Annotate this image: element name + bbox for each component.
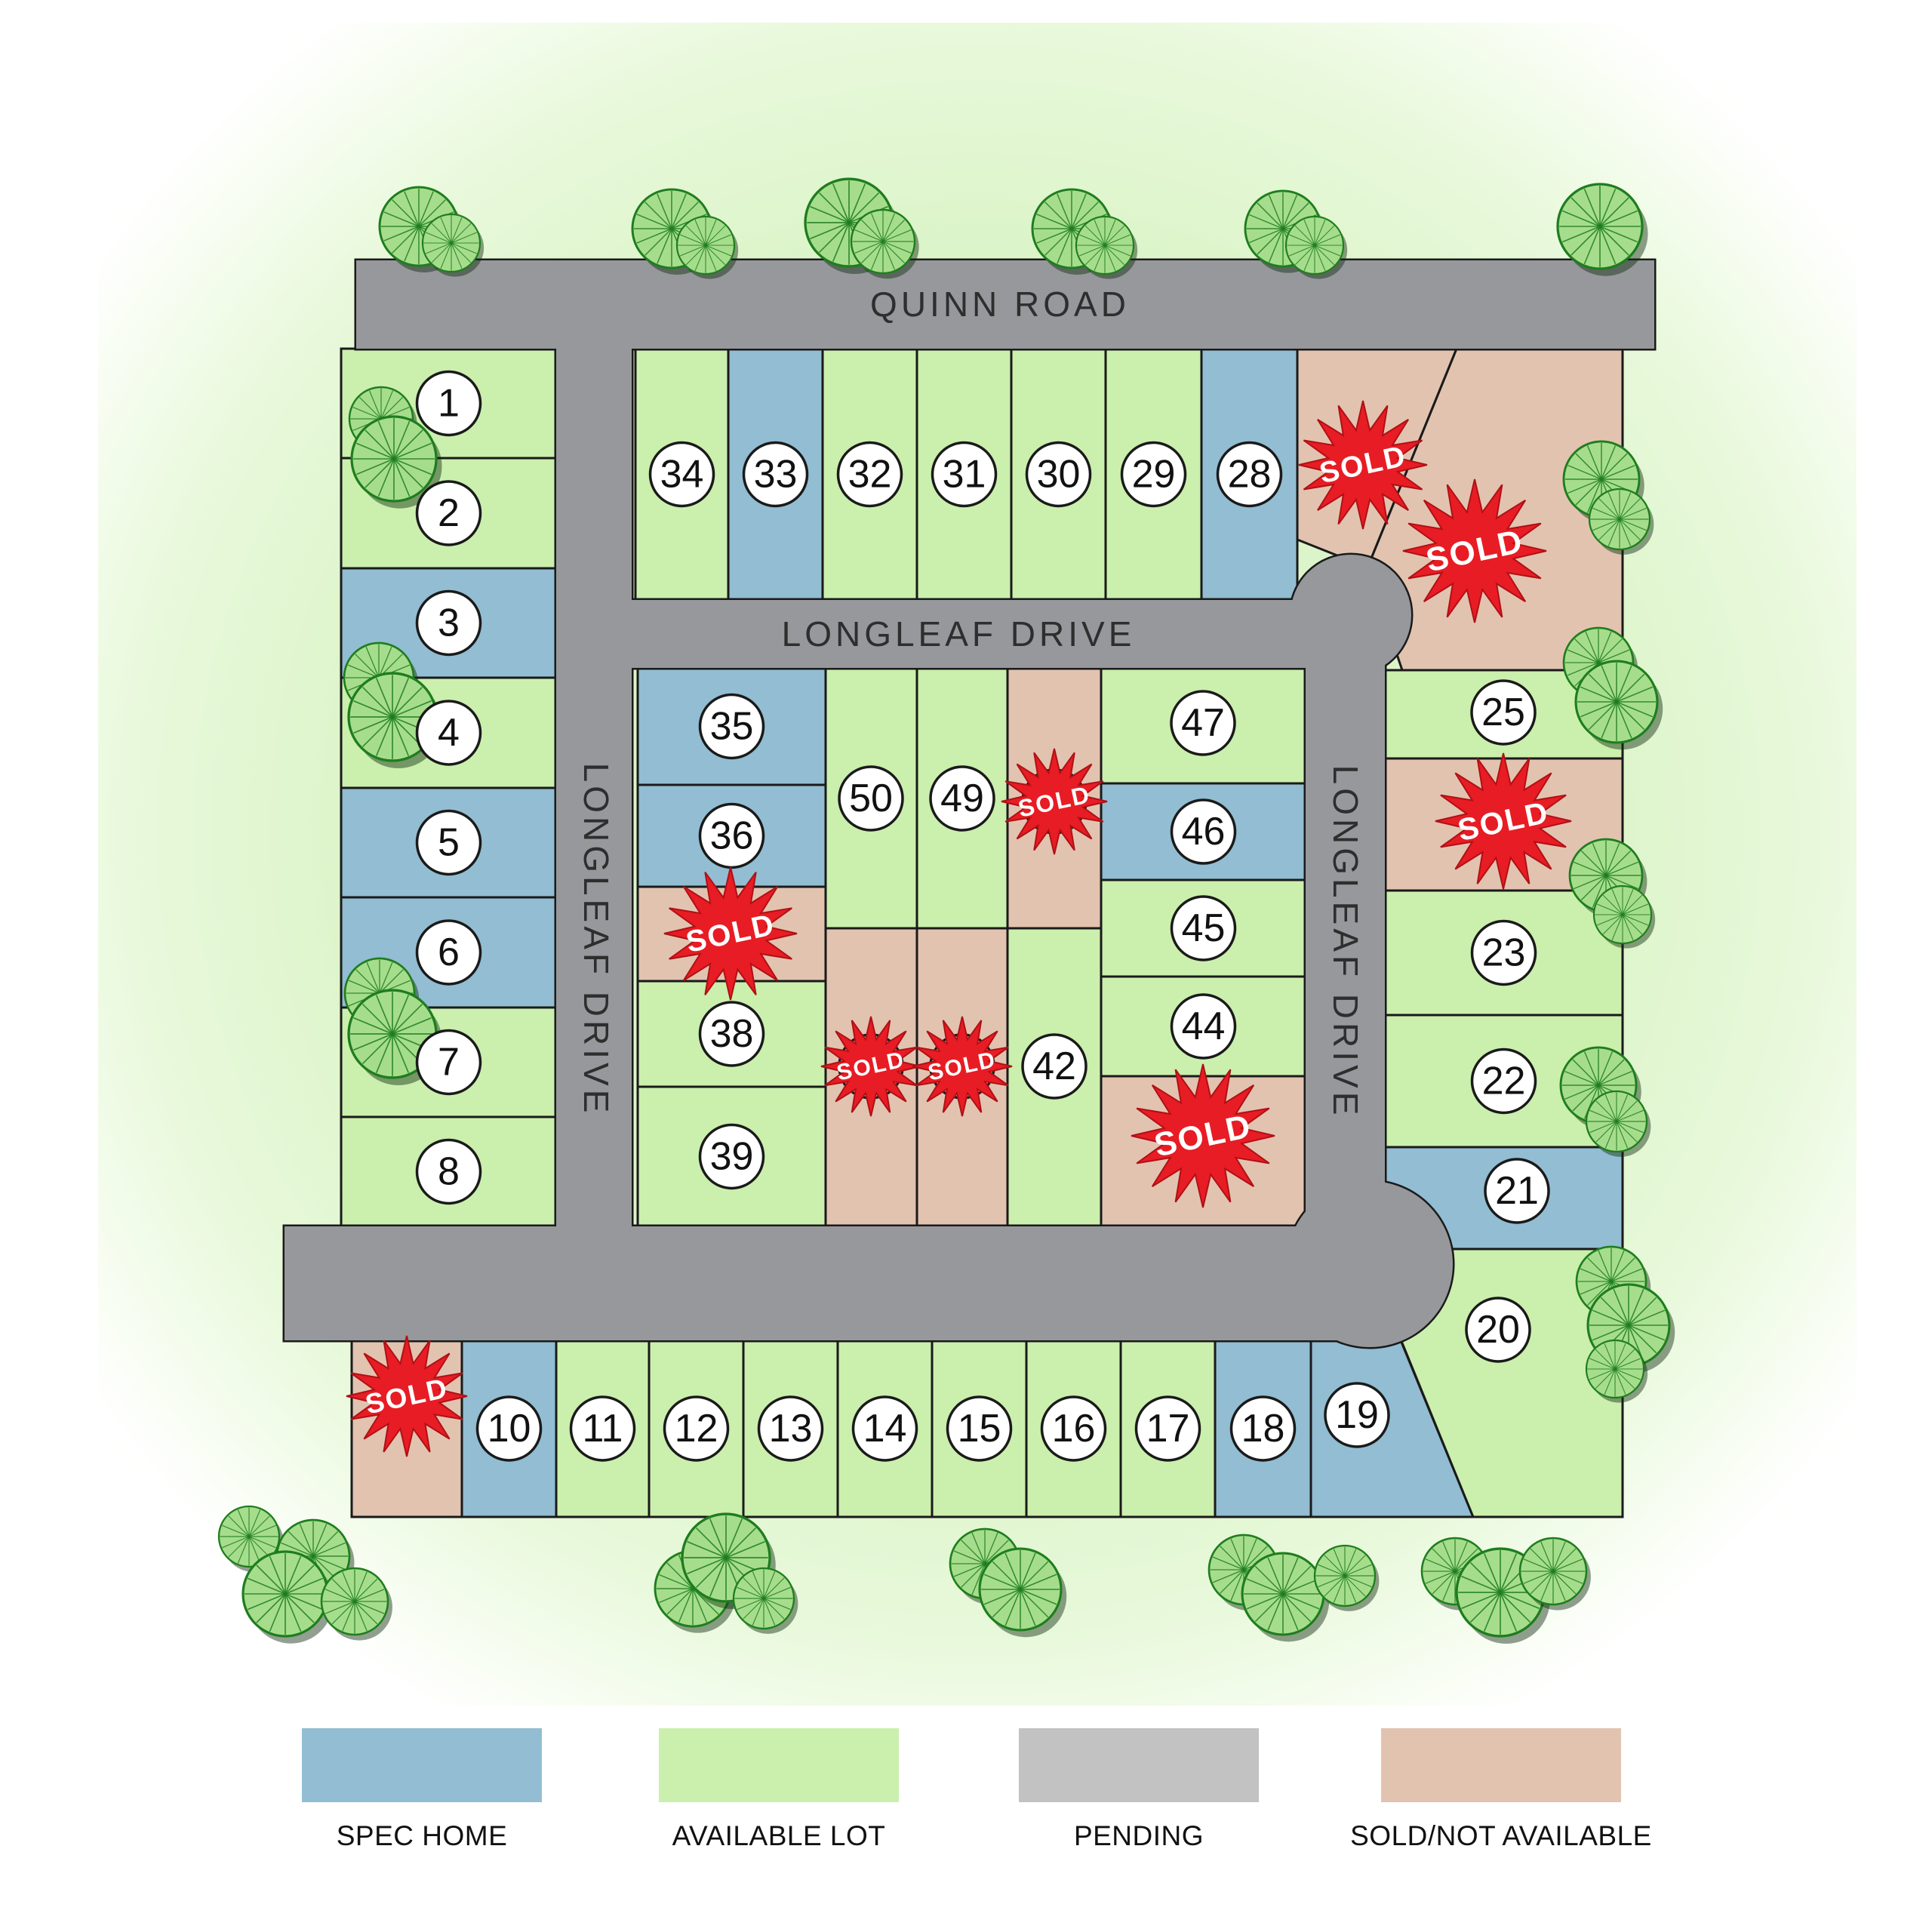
legend: SPEC HOME AVAILABLE LOT PENDING SOLD/NOT… bbox=[302, 1728, 1652, 1851]
lot-28-number: 28 bbox=[1218, 443, 1281, 506]
svg-text:45: 45 bbox=[1182, 906, 1226, 950]
svg-text:4: 4 bbox=[438, 711, 460, 755]
svg-text:25: 25 bbox=[1481, 691, 1525, 734]
lot-7-number: 7 bbox=[417, 1031, 481, 1094]
svg-text:2: 2 bbox=[438, 491, 460, 535]
lot-5-number: 5 bbox=[417, 811, 481, 875]
svg-text:42: 42 bbox=[1032, 1044, 1076, 1088]
lot-13-number: 13 bbox=[759, 1397, 823, 1460]
road-label-longleaf-drive-upper: LONGLEAF DRIVE bbox=[782, 614, 1136, 654]
road-label-longleaf-drive-right: LONGLEAF DRIVE bbox=[1326, 765, 1365, 1119]
legend-item-pending: PENDING bbox=[1019, 1728, 1259, 1851]
lot-30-number: 30 bbox=[1027, 443, 1091, 506]
lot-14-number: 14 bbox=[854, 1397, 917, 1460]
svg-text:17: 17 bbox=[1146, 1407, 1190, 1451]
sold-badge-lot-48: SOLD bbox=[1001, 749, 1107, 854]
lot-32-number: 32 bbox=[838, 443, 902, 506]
legend-swatch-pending bbox=[1019, 1728, 1259, 1802]
svg-text:29: 29 bbox=[1132, 453, 1176, 497]
svg-text:32: 32 bbox=[848, 453, 892, 497]
sold-badge-lot-9: SOLD bbox=[346, 1336, 467, 1457]
legend-label-spec-home: SPEC HOME bbox=[337, 1820, 508, 1851]
road-label-longleaf-drive-left: LONGLEAF DRIVE bbox=[577, 763, 616, 1117]
road-lower-culdesac bbox=[1287, 1181, 1453, 1347]
lot-42-number: 42 bbox=[1023, 1035, 1086, 1098]
svg-text:39: 39 bbox=[710, 1135, 754, 1179]
lot-2-number: 2 bbox=[417, 481, 481, 545]
sold-badge-lot-41: SOLD bbox=[912, 1017, 1012, 1116]
lot-22-number: 22 bbox=[1472, 1050, 1536, 1113]
svg-text:6: 6 bbox=[438, 931, 460, 974]
svg-text:47: 47 bbox=[1181, 701, 1225, 745]
lot-25-number: 25 bbox=[1472, 681, 1535, 744]
svg-text:46: 46 bbox=[1182, 810, 1226, 854]
svg-text:33: 33 bbox=[754, 453, 798, 497]
svg-text:15: 15 bbox=[958, 1407, 1001, 1451]
svg-text:34: 34 bbox=[660, 453, 704, 497]
svg-text:23: 23 bbox=[1482, 931, 1526, 975]
svg-text:7: 7 bbox=[438, 1041, 460, 1084]
svg-text:8: 8 bbox=[438, 1150, 460, 1194]
lot-29-number: 29 bbox=[1122, 443, 1186, 506]
lot-34-number: 34 bbox=[651, 443, 714, 506]
sold-badge-lot-37: SOLD bbox=[664, 867, 797, 1000]
sold-badge-lot-27: SOLD bbox=[1299, 401, 1427, 529]
svg-text:36: 36 bbox=[710, 814, 754, 858]
lot-44-number: 44 bbox=[1172, 995, 1235, 1058]
lot-16-number: 16 bbox=[1042, 1397, 1106, 1460]
sold-badge-lot-40: SOLD bbox=[821, 1017, 921, 1116]
lot-35-number: 35 bbox=[700, 695, 764, 758]
lot-46-number: 46 bbox=[1172, 800, 1235, 863]
lot-4-number: 4 bbox=[417, 701, 481, 764]
svg-text:35: 35 bbox=[710, 705, 754, 749]
lot-15-number: 15 bbox=[948, 1397, 1011, 1460]
svg-text:49: 49 bbox=[940, 777, 984, 820]
lot-8-number: 8 bbox=[417, 1140, 481, 1204]
road-longleaf-drive-bottom bbox=[285, 1226, 1371, 1340]
legend-item-available-lot: AVAILABLE LOT bbox=[659, 1728, 899, 1851]
road-upper-knuckle bbox=[1291, 555, 1411, 675]
lot-12-number: 12 bbox=[665, 1397, 728, 1460]
legend-swatch-sold-not-available bbox=[1381, 1728, 1621, 1802]
svg-text:12: 12 bbox=[675, 1407, 718, 1451]
legend-swatch-spec-home bbox=[302, 1728, 542, 1802]
lot-1-number: 1 bbox=[417, 372, 481, 435]
svg-text:38: 38 bbox=[710, 1012, 754, 1056]
lot-31-number: 31 bbox=[933, 443, 996, 506]
lot-21-number: 21 bbox=[1485, 1159, 1549, 1223]
svg-text:31: 31 bbox=[943, 453, 986, 497]
lot-38-number: 38 bbox=[700, 1002, 764, 1066]
legend-item-spec-home: SPEC HOME bbox=[302, 1728, 542, 1851]
sold-badge-lot-26: SOLD bbox=[1403, 479, 1546, 623]
lot-19-number: 19 bbox=[1325, 1383, 1389, 1447]
lot-17-number: 17 bbox=[1137, 1397, 1200, 1460]
svg-text:13: 13 bbox=[769, 1407, 813, 1451]
svg-text:5: 5 bbox=[438, 821, 460, 865]
lot-47-number: 47 bbox=[1171, 691, 1235, 755]
svg-text:11: 11 bbox=[583, 1407, 623, 1451]
svg-text:3: 3 bbox=[438, 601, 460, 645]
lot-23-number: 23 bbox=[1472, 921, 1536, 985]
svg-text:21: 21 bbox=[1495, 1169, 1539, 1213]
svg-text:50: 50 bbox=[849, 777, 893, 820]
svg-text:10: 10 bbox=[488, 1407, 531, 1451]
legend-item-sold-not-available: SOLD/NOT AVAILABLE bbox=[1350, 1728, 1652, 1851]
svg-text:22: 22 bbox=[1482, 1060, 1526, 1103]
road-label-quinn-road: QUINN ROAD bbox=[870, 285, 1130, 324]
lot-6-number: 6 bbox=[417, 921, 481, 984]
legend-swatch-available-lot bbox=[659, 1728, 899, 1802]
lot-50-number: 50 bbox=[839, 767, 903, 830]
sold-badge-lot-24: SOLD bbox=[1435, 753, 1571, 889]
svg-text:1: 1 bbox=[438, 382, 460, 426]
svg-text:28: 28 bbox=[1228, 453, 1272, 497]
lot-20-number: 20 bbox=[1466, 1298, 1530, 1361]
svg-text:20: 20 bbox=[1476, 1308, 1520, 1352]
svg-text:18: 18 bbox=[1241, 1407, 1285, 1451]
lot-45-number: 45 bbox=[1172, 897, 1235, 960]
lot-39-number: 39 bbox=[700, 1125, 764, 1189]
lot-33-number: 33 bbox=[744, 443, 808, 506]
legend-label-sold-not-available: SOLD/NOT AVAILABLE bbox=[1350, 1820, 1652, 1851]
legend-label-pending: PENDING bbox=[1074, 1820, 1204, 1851]
svg-text:44: 44 bbox=[1182, 1004, 1226, 1048]
svg-text:19: 19 bbox=[1335, 1393, 1379, 1437]
lot-10-number: 10 bbox=[478, 1397, 541, 1460]
svg-text:30: 30 bbox=[1037, 453, 1081, 497]
lot-11-number: 11 bbox=[571, 1397, 635, 1460]
lot-49-number: 49 bbox=[931, 767, 994, 830]
site-plan-map: QUINN ROADLONGLEAF DRIVELONGLEAF DRIVELO… bbox=[0, 0, 1932, 1932]
sold-badge-lot-43: SOLD bbox=[1131, 1064, 1275, 1207]
lot-18-number: 18 bbox=[1232, 1397, 1295, 1460]
svg-text:14: 14 bbox=[863, 1407, 907, 1451]
legend-label-available-lot: AVAILABLE LOT bbox=[672, 1820, 886, 1851]
svg-text:16: 16 bbox=[1052, 1407, 1096, 1451]
lot-3-number: 3 bbox=[417, 592, 481, 655]
lot-36-number: 36 bbox=[700, 804, 764, 868]
